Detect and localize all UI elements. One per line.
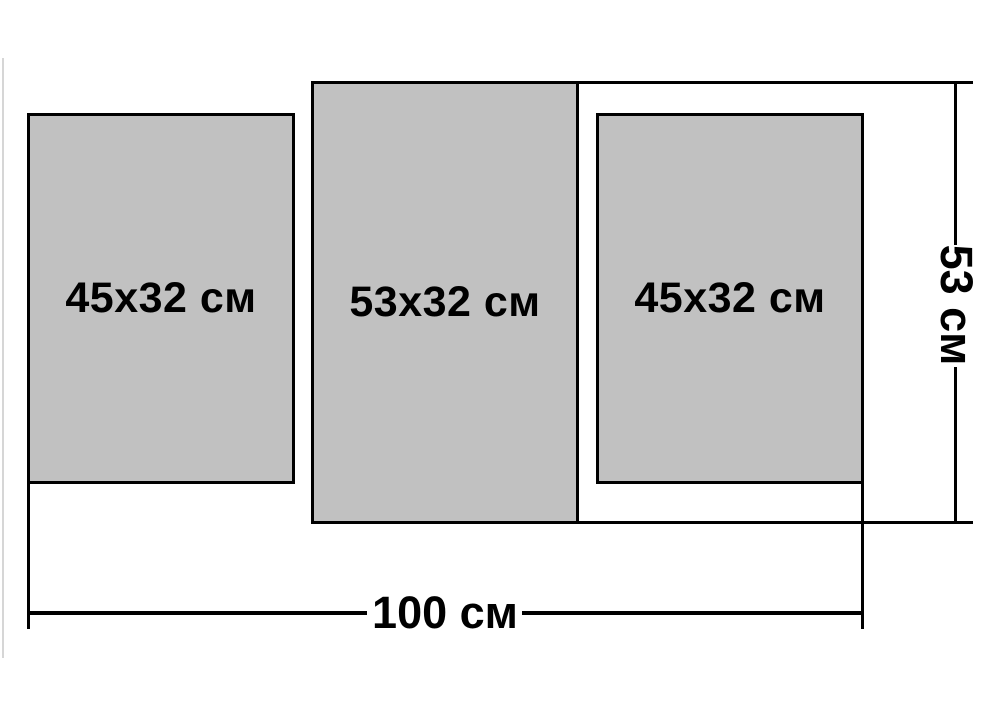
panel-middle-size-label: 53x32 см — [349, 278, 540, 327]
height-dimension-line-upper — [954, 81, 957, 245]
panel-right: 45x32 см — [596, 113, 864, 484]
width-dimension-tick-right — [861, 484, 864, 629]
width-dimension-tick-left — [27, 484, 30, 629]
photo-edge-artifact — [2, 58, 4, 658]
panel-right-size-label: 45x32 см — [634, 274, 825, 323]
width-dimension-line-right — [522, 611, 864, 615]
panel-left: 45x32 см — [27, 113, 295, 484]
height-dimension-line-lower — [954, 367, 957, 524]
triptych-size-diagram: 45x32 см 53x32 см 45x32 см 53 см 100 см — [0, 0, 1000, 710]
panel-left-size-label: 45x32 см — [65, 274, 256, 323]
panel-middle: 53x32 см — [311, 81, 579, 524]
width-dimension-line-left — [27, 611, 367, 615]
height-dimension-label: 53 см — [930, 245, 982, 366]
width-dimension-label: 100 см — [372, 587, 518, 639]
